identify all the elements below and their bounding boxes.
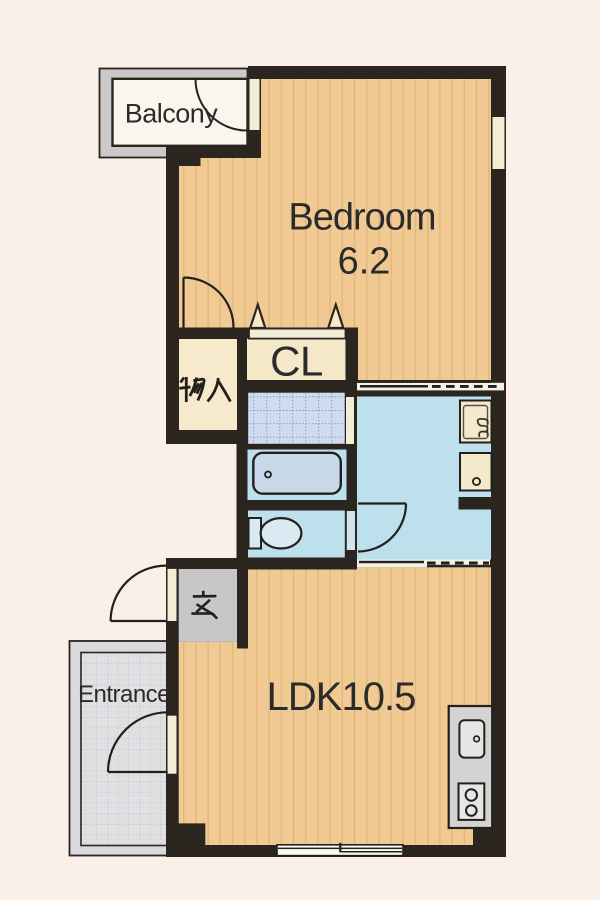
- svg-text:Entrance: Entrance: [78, 681, 170, 708]
- svg-text:6.2: 6.2: [338, 241, 391, 283]
- svg-text:CL: CL: [270, 338, 323, 385]
- svg-text:Bedroom: Bedroom: [288, 197, 435, 239]
- svg-text:Balcony: Balcony: [125, 99, 219, 129]
- svg-text:LDK10.5: LDK10.5: [267, 675, 416, 719]
